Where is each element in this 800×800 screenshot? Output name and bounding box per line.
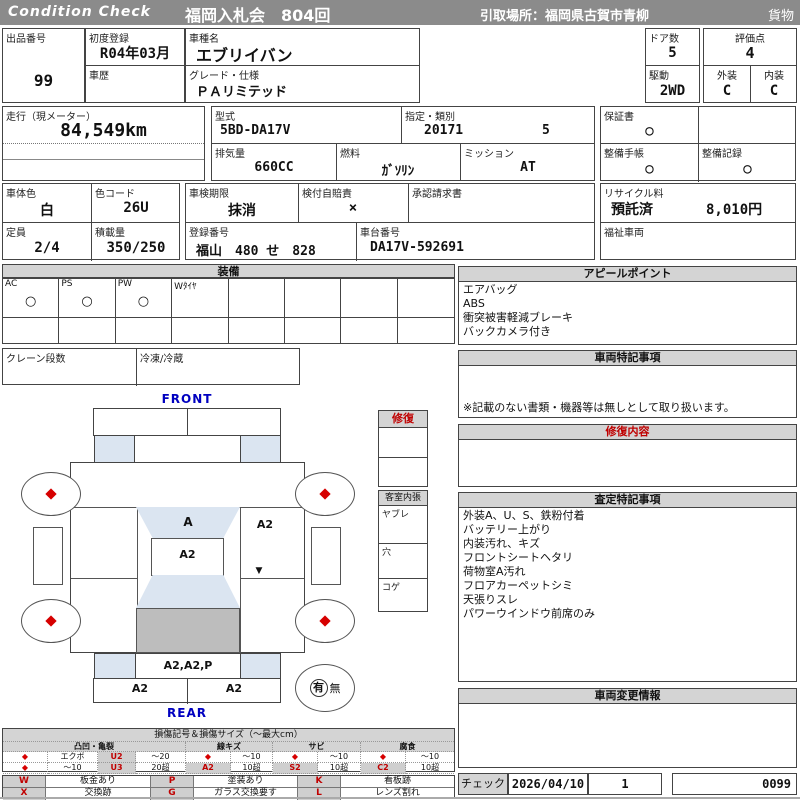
- approval-label: 承認請求書: [412, 185, 462, 200]
- assessment-notes-body: 外装A、U、S、鉄粉付着 バッテリー上がり 内装汚れ、キズ フロントシートヘタリ…: [463, 509, 595, 621]
- lot-number-label: 出品番号: [6, 30, 46, 45]
- front-corner-right: [240, 435, 281, 463]
- cabin-lining-box: 客室内張 ヤブレ 穴 コゲ: [378, 490, 428, 612]
- legend-mark-p: P: [151, 776, 194, 788]
- equipment-cell-empty: [398, 279, 454, 318]
- warranty-value: ○: [601, 123, 698, 139]
- equipment-cell-ps: PS ○: [59, 279, 115, 318]
- registration-number-label: 登録番号: [189, 224, 229, 239]
- roof-damage-mark: A2: [151, 548, 224, 561]
- spare-tire-yes: 有: [310, 679, 328, 697]
- rear-window: [136, 575, 240, 608]
- load-value: 350/250: [91, 240, 181, 256]
- condition-check-sheet: Condition Check 福岡入札会 804回 引取場所：福岡県古賀市青柳…: [0, 0, 800, 800]
- legend-diamond-icon: ◆: [186, 752, 231, 763]
- exterior-grade-value: C: [704, 83, 750, 99]
- cabin-row-tear: ヤブレ: [382, 507, 409, 520]
- drive-label: 駆動: [649, 67, 669, 82]
- brand-logo: Condition Check: [8, 4, 151, 20]
- vehicle-category: 貨物: [768, 5, 794, 24]
- assessment-notes-box: 査定特記事項 外装A、U、S、鉄粉付着 バッテリー上がり 内装汚れ、キズ フロン…: [458, 492, 797, 682]
- legend-group-rust: サビ: [273, 742, 361, 752]
- legend-group-dent: 凸凹・亀裂: [3, 742, 186, 752]
- front-right-wheel: [295, 472, 355, 516]
- legend-diamond-icon: ◆: [3, 763, 48, 774]
- capacity-label: 定員: [6, 224, 26, 239]
- doors-label: ドア数: [649, 30, 679, 45]
- chassis-number-label: 車台番号: [360, 224, 400, 239]
- equipment-grid: AC ○ PS ○ PW ○ Wﾀｲﾔ: [2, 278, 455, 344]
- damage-legend-title: 損傷記号＆損傷サイズ（～最大cm）: [3, 729, 454, 742]
- crane-label: クレーン段数: [6, 350, 66, 365]
- color-code-label: 色コード: [95, 185, 135, 200]
- body-color-label: 車体色: [6, 185, 36, 200]
- class-value-2: 5: [542, 123, 550, 138]
- vehicle-notes-title: 車両特記事項: [459, 351, 796, 366]
- fuel-label: 燃料: [340, 145, 360, 160]
- equipment-cell-pw: PW ○: [116, 279, 172, 318]
- rear-gate: A2,A2,P: [135, 653, 241, 679]
- legend-mark-w: W: [3, 776, 46, 788]
- documents-grid: 保証書 ○ 整備手帳 ○ 整備記録 ○: [600, 106, 796, 181]
- crane-freezer-grid: クレーン段数 冷凍/冷蔵: [2, 348, 300, 385]
- color-capacity-grid: 車体色 白 色コード 26U 定員 2/4 積載量 350/250: [2, 183, 180, 260]
- insurance-value: ×: [298, 200, 408, 216]
- spec-grid: 型式 5BD-DA17V 指定・類別 20171 5 排気量 660CC 燃料 …: [211, 106, 595, 181]
- legend-mark-k: K: [298, 776, 341, 788]
- insurance-label: 検付自賠責: [302, 185, 352, 200]
- displacement-value: 660CC: [212, 160, 336, 175]
- front-cowl: [134, 435, 241, 463]
- title-bar: Condition Check 福岡入札会 804回 引取場所：福岡県古賀市青柳…: [0, 0, 800, 25]
- grade-label: グレード・仕様: [189, 67, 259, 82]
- auction-title: 福岡入札会 804回: [185, 2, 330, 26]
- doors-value: 5: [646, 45, 699, 61]
- mileage-value: 84,549km: [3, 120, 204, 141]
- recycle-label: リサイクル料: [604, 185, 664, 200]
- left-step-panel: [33, 527, 63, 585]
- maintenance-book-label: 整備手帳: [604, 145, 644, 160]
- appeal-points-box: アピールポイント エアバッグ ABS 衝突被害軽減ブレーキ バックカメラ付き: [458, 266, 797, 345]
- equipment-cell-ac: AC ○: [3, 279, 59, 318]
- check-count-cell: 1: [588, 773, 662, 795]
- equipment-cell-empty: [229, 279, 285, 318]
- fuel-value: ｶﾞｿﾘﾝ: [336, 160, 460, 179]
- change-info-box: 車両変更情報: [458, 688, 797, 768]
- cabin-box-title: 客室内張: [379, 491, 427, 506]
- model-code-value: 5BD-DA17V: [220, 123, 290, 138]
- repair-detail-box: 修復内容: [458, 424, 797, 487]
- rear-bumper-left-mark: A2: [93, 682, 187, 695]
- appeal-points-title: アピールポイント: [459, 267, 796, 282]
- registration-number-value: 福山 480 せ 828: [196, 240, 316, 259]
- mileage-cell: 走行（現メーター） 84,549km: [2, 106, 205, 181]
- interior-grade-label: 内装: [751, 67, 797, 82]
- transmission-value: AT: [460, 160, 596, 175]
- appeal-points-body: エアバッグ ABS 衝突被害軽減ブレーキ バックカメラ付き: [463, 283, 573, 339]
- vehicle-notes-box: 車両特記事項 ※記載のない書類・機器等は無しとして取り扱います。: [458, 350, 797, 418]
- windshield-damage-mark: A: [136, 515, 240, 529]
- rear-bumper-right-mark: A2: [187, 682, 281, 695]
- grade-value: ＰＡリミテッド: [196, 81, 287, 100]
- repair-detail-title: 修復内容: [459, 425, 796, 440]
- front-left-wheel: [21, 472, 81, 516]
- score-label: 評価点: [704, 30, 796, 45]
- damage-diamond-icon: [45, 615, 56, 626]
- damage-diamond-icon: [319, 615, 330, 626]
- spare-tire-indicator: 有 無: [295, 664, 355, 712]
- mark-legend: W 板金あり P 塗装あり K 看板跡 X 交換跡 G ガラス交換要す L レン…: [2, 775, 455, 799]
- recycle-welfare-grid: リサイクル料 預託済 8,010円 福祉車両: [600, 183, 796, 260]
- welfare-label: 福祉車両: [604, 224, 644, 239]
- sheet-number-cell: 0099: [672, 773, 797, 795]
- cargo-bed: [136, 608, 240, 653]
- warranty-label: 保証書: [604, 108, 634, 123]
- first-registration-value: R04年03月: [86, 43, 184, 63]
- body-color-value: 白: [3, 200, 91, 220]
- legend-group-scratch: 線キズ: [186, 742, 273, 752]
- recycle-fee: 8,010円: [706, 199, 762, 219]
- equipment-cell-empty: [341, 279, 397, 318]
- rear-corner-right: [240, 653, 281, 679]
- model-name-value: エブリイバン: [196, 42, 292, 66]
- damage-diamond-icon: [45, 488, 56, 499]
- model-code-label: 型式: [215, 108, 235, 123]
- score-value: 4: [704, 44, 796, 62]
- cabin-row-hole: 穴: [382, 545, 391, 558]
- pickup-location: 引取場所：福岡県古賀市青柳: [480, 5, 649, 24]
- score-cell: 評価点 4 外装 C 内装 C: [703, 28, 797, 103]
- freezer-label: 冷凍/冷蔵: [140, 350, 183, 365]
- transmission-label: ミッション: [464, 145, 514, 160]
- assessment-notes-title: 査定特記事項: [459, 493, 796, 508]
- vehicle-notes-footer: ※記載のない書類・機器等は無しとして取り扱います。: [463, 399, 735, 415]
- spare-tire-no: 無: [330, 680, 341, 696]
- side-panel-damage-mark: A2: [250, 518, 280, 531]
- legend-group-corrosion: 腐食: [361, 742, 454, 752]
- rear-right-wheel: [295, 599, 355, 643]
- model-name-cell: 車種名 エブリイバン グレード・仕様 ＰＡリミテッド: [185, 28, 420, 103]
- lot-number-value: 99: [3, 71, 84, 90]
- load-label: 積載量: [95, 224, 125, 239]
- check-label-cell: チェック: [458, 773, 508, 795]
- front-bumper: [93, 408, 281, 436]
- rear-label: REAR: [92, 706, 282, 720]
- change-info-title: 車両変更情報: [459, 689, 796, 704]
- rear-left-wheel: [21, 599, 81, 643]
- equipment-cell-empty: [285, 279, 341, 318]
- history-label: 車歴: [89, 67, 109, 82]
- first-registration-cell: 初度登録 R04年03月 車歴: [85, 28, 185, 103]
- damage-diamond-icon: [319, 488, 330, 499]
- interior-grade-value: C: [751, 83, 797, 99]
- damage-legend: 損傷記号＆損傷サイズ（～最大cm） 凸凹・亀裂 線キズ サビ 腐食 ◆ エクボ …: [2, 728, 455, 772]
- side-small-damage-mark: ▼: [252, 566, 266, 576]
- capacity-value: 2/4: [3, 240, 91, 256]
- maintenance-record-value: ○: [698, 161, 797, 177]
- doors-drive-cell: ドア数 5 駆動 2WD: [645, 28, 700, 103]
- chassis-number-value: DA17V-592691: [370, 240, 464, 255]
- drive-value: 2WD: [646, 83, 699, 99]
- inspection-registration-grid: 車検期限 抹消 検付自賠責 × 承認請求書 登録番号 福山 480 せ 828 …: [185, 183, 595, 260]
- front-label: FRONT: [92, 392, 282, 406]
- equipment-cell-wtire: Wﾀｲﾔ: [172, 279, 228, 318]
- recycle-status: 預託済: [611, 199, 653, 219]
- right-step-panel: [311, 527, 341, 585]
- legend-diamond-icon: ◆: [273, 752, 318, 763]
- legend-diamond-icon: ◆: [3, 752, 48, 763]
- class-label: 指定・類別: [405, 108, 455, 123]
- color-code-value: 26U: [91, 200, 181, 216]
- exterior-grade-label: 外装: [704, 67, 750, 82]
- lot-number-cell: 出品番号 99: [2, 28, 85, 103]
- cabin-row-burn: コゲ: [382, 580, 400, 593]
- inspection-value: 抹消: [186, 200, 298, 220]
- legend-diamond-icon: ◆: [361, 752, 406, 763]
- displacement-label: 排気量: [215, 145, 245, 160]
- inspection-label: 車検期限: [189, 185, 229, 200]
- equipment-header: 装備: [2, 264, 455, 278]
- rear-corner-left: [94, 653, 136, 679]
- maintenance-book-value: ○: [601, 161, 698, 177]
- check-date-cell: 2026/04/10: [508, 773, 588, 795]
- repair-box: 修復: [378, 410, 428, 487]
- class-value-1: 20171: [424, 123, 463, 138]
- front-corner-left: [94, 435, 135, 463]
- maintenance-record-label: 整備記録: [702, 145, 742, 160]
- repair-box-title: 修復: [379, 411, 427, 428]
- bottom-rule: [0, 797, 800, 799]
